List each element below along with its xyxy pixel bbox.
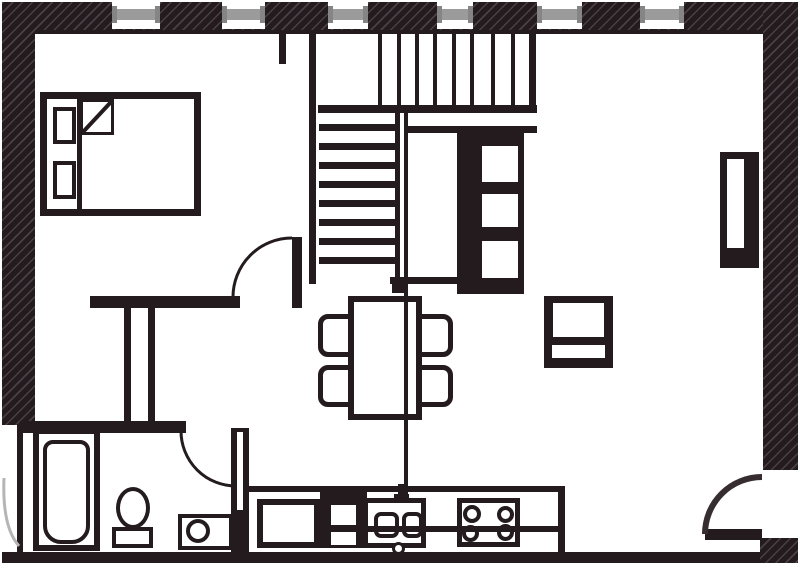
wall-stub	[279, 33, 286, 64]
toilet-tank	[112, 527, 153, 548]
window-glass	[644, 9, 680, 20]
window-glass	[440, 9, 470, 20]
shelf-compartment	[482, 241, 518, 278]
window-cap	[328, 6, 333, 23]
bedroom-door-leaf	[292, 237, 302, 308]
window-cap	[260, 6, 265, 23]
stair-tread	[319, 162, 396, 169]
stair-riser	[415, 34, 419, 107]
entry-door-leaf	[705, 529, 762, 540]
stair-tread	[319, 143, 396, 150]
stair-tread	[319, 219, 396, 226]
wall-left	[2, 2, 35, 425]
bathroom-door-swing	[181, 431, 236, 486]
wall-left-lower	[17, 424, 23, 553]
pillow	[53, 107, 76, 144]
stair-riser	[452, 34, 456, 107]
counter-front-edge	[318, 526, 565, 532]
window-glass	[116, 9, 156, 20]
side-table-shelf	[552, 345, 605, 358]
side-table-top	[553, 303, 604, 337]
window-cap	[537, 6, 542, 23]
window-cap	[222, 6, 227, 23]
hall-wall	[90, 296, 240, 308]
stair-riser	[511, 34, 515, 107]
window-cap	[468, 6, 473, 23]
stair-riser	[470, 34, 474, 107]
shelf-compartment	[482, 194, 518, 227]
bathtub-basin	[43, 440, 90, 544]
stair-riser	[397, 34, 401, 107]
stair-landing-edge	[318, 105, 537, 113]
partition-cavity	[237, 432, 243, 510]
oven-drawer	[331, 505, 356, 525]
window-cap	[112, 6, 117, 23]
sink-drain	[392, 542, 405, 555]
entry-door-swing	[705, 477, 762, 534]
wall-right	[763, 2, 798, 470]
closet-partition	[124, 308, 131, 425]
closet-partition	[148, 308, 155, 425]
window-glass	[332, 9, 364, 20]
window-cap	[640, 6, 645, 23]
burner	[497, 506, 514, 523]
pillow	[53, 161, 76, 199]
stair-tread	[319, 124, 396, 131]
counter-end	[558, 486, 565, 553]
blanket-fold	[80, 99, 114, 135]
floor-plan	[0, 0, 800, 569]
window-cap	[679, 6, 684, 23]
stair-tread	[319, 238, 396, 245]
window-cap	[363, 6, 368, 23]
window-cap	[437, 6, 442, 23]
burner	[463, 505, 481, 523]
stair-tread	[319, 200, 396, 207]
stair-side-wall	[309, 33, 316, 284]
wall-corner-bottom-right	[760, 538, 798, 563]
faucet-base	[394, 494, 409, 499]
kitchen-cabinet	[257, 499, 320, 548]
window-cap	[155, 6, 160, 23]
stair-rail	[395, 113, 400, 284]
sink-basin	[402, 512, 423, 538]
stair-newel-post	[392, 280, 404, 293]
stair-tread	[319, 257, 396, 264]
window-glass	[541, 9, 578, 20]
sink-basin	[374, 512, 399, 538]
counter-back-edge	[249, 486, 565, 492]
stair-riser	[378, 34, 382, 107]
stair-tread	[319, 181, 396, 188]
dining-table	[348, 296, 422, 420]
stair-riser	[491, 34, 495, 107]
window-cap	[577, 6, 582, 23]
window-glass	[226, 9, 261, 20]
bedroom-door-swing	[233, 238, 292, 297]
stair-riser	[433, 34, 437, 107]
oven-drawer	[331, 530, 356, 545]
stair-head-wall	[529, 34, 536, 110]
toilet-bowl	[116, 487, 150, 529]
radiator-panel	[727, 159, 744, 248]
wash-basin	[186, 519, 210, 543]
shelf-compartment	[482, 146, 518, 182]
